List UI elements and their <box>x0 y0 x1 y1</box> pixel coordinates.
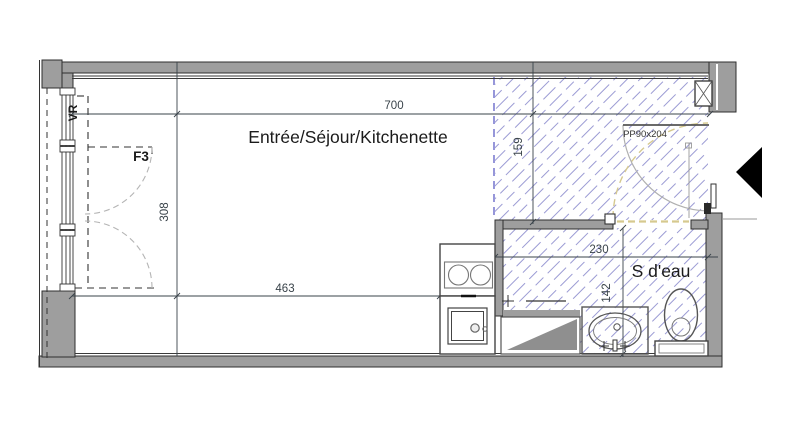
wall-bottom <box>39 356 722 367</box>
kitchenette <box>440 244 495 354</box>
room-label-bathroom: S d'eau <box>632 261 691 281</box>
floorplan-drawing: Entrée/Séjour/Kitchenette S d'eau 700 30… <box>0 0 800 448</box>
window-mullion-2 <box>60 140 75 146</box>
shower-flange <box>503 310 580 317</box>
window-code-label: F3 <box>133 149 149 164</box>
duct <box>695 81 712 106</box>
floorplan-canvas: Entrée/Séjour/Kitchenette S d'eau 700 30… <box>0 0 800 448</box>
window-mullion-1 <box>60 88 75 95</box>
wall-bathroom-left <box>495 220 503 316</box>
window-mullion-6 <box>60 284 75 291</box>
entrance-door-stop <box>711 184 716 208</box>
dim-label-159: 159 <box>513 137 525 156</box>
faucet-body <box>613 340 617 351</box>
dim-label-463: 463 <box>275 283 294 295</box>
wall-top-left-block <box>42 60 62 88</box>
window-mullion-5 <box>60 231 75 237</box>
roller-shutter-label: VR <box>66 104 80 121</box>
entry-zone-hatch <box>495 77 708 220</box>
wall-bathroom-divider-stub <box>691 220 708 229</box>
dim-label-142: 142 <box>601 283 613 302</box>
wall-right-lower <box>706 213 722 360</box>
window-mullion-3 <box>60 147 75 153</box>
kitchen-faucet <box>471 324 479 332</box>
room-label-main: Entrée/Séjour/Kitchenette <box>248 127 447 147</box>
dim-label-700: 700 <box>384 100 403 112</box>
wall-top-left-step <box>62 73 73 88</box>
wall-top <box>62 62 713 73</box>
window-mullion-4 <box>60 224 75 230</box>
bathroom-door-jamb <box>605 214 615 224</box>
entrance-door-code-label: PP90x204 <box>623 129 667 140</box>
wall-right-upper <box>709 62 736 112</box>
kitchen-sink-outer <box>448 308 487 344</box>
dim-label-308: 308 <box>159 202 171 221</box>
dim-label-230: 230 <box>589 244 608 256</box>
wall-bathroom-divider <box>495 220 613 229</box>
toilet-tank <box>655 341 708 356</box>
entrance-door-hinge-block <box>704 203 711 214</box>
